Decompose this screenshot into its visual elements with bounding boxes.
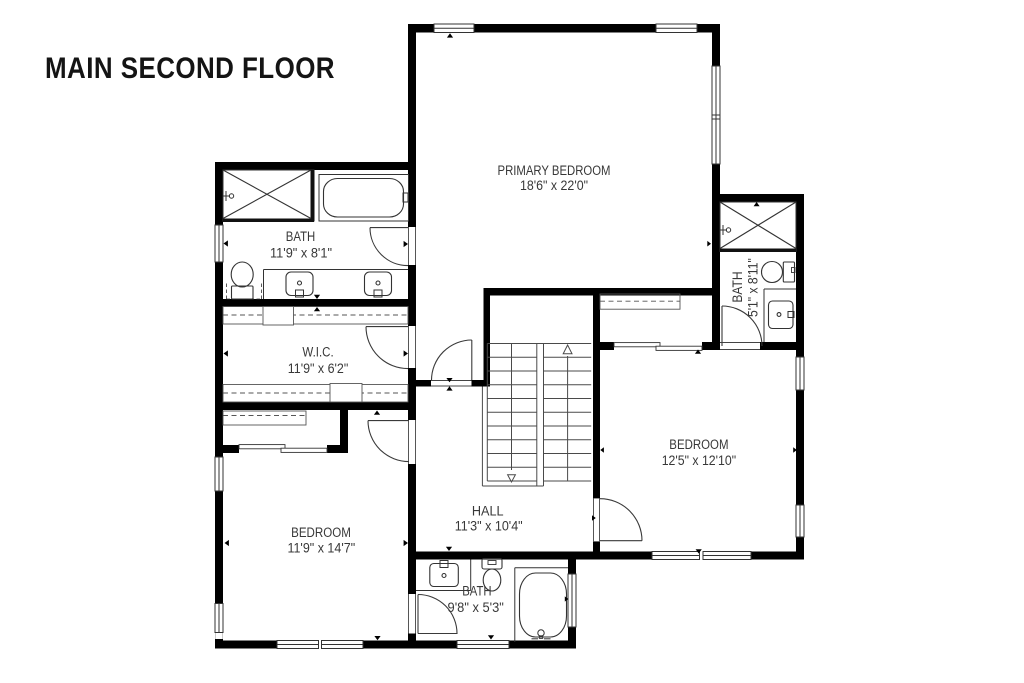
svg-text:11'3" x 10'4": 11'3" x 10'4" xyxy=(455,519,523,534)
svg-text:11'9" x 6'2": 11'9" x 6'2" xyxy=(288,361,349,376)
svg-text:MAIN SECOND FLOOR: MAIN SECOND FLOOR xyxy=(45,52,335,85)
svg-text:BEDROOM: BEDROOM xyxy=(291,525,351,540)
svg-text:9'8" x 5'3": 9'8" x 5'3" xyxy=(448,600,504,615)
svg-text:12'5" x 12'10": 12'5" x 12'10" xyxy=(662,453,737,468)
svg-text:BATH: BATH xyxy=(462,584,491,599)
svg-text:PRIMARY BEDROOM: PRIMARY BEDROOM xyxy=(498,163,611,178)
svg-text:BATH: BATH xyxy=(286,229,316,244)
svg-text:BATH: BATH xyxy=(730,271,745,302)
svg-text:11'9" x 14'7": 11'9" x 14'7" xyxy=(287,540,355,555)
svg-text:W.I.C.: W.I.C. xyxy=(302,345,333,360)
svg-text:5'1" x 8'11": 5'1" x 8'11" xyxy=(745,258,760,317)
svg-text:11'9" x 8'1": 11'9" x 8'1" xyxy=(270,245,332,260)
svg-text:18'6" x 22'0": 18'6" x 22'0" xyxy=(520,178,588,193)
svg-text:BEDROOM: BEDROOM xyxy=(669,437,728,452)
svg-text:HALL: HALL xyxy=(472,503,504,518)
